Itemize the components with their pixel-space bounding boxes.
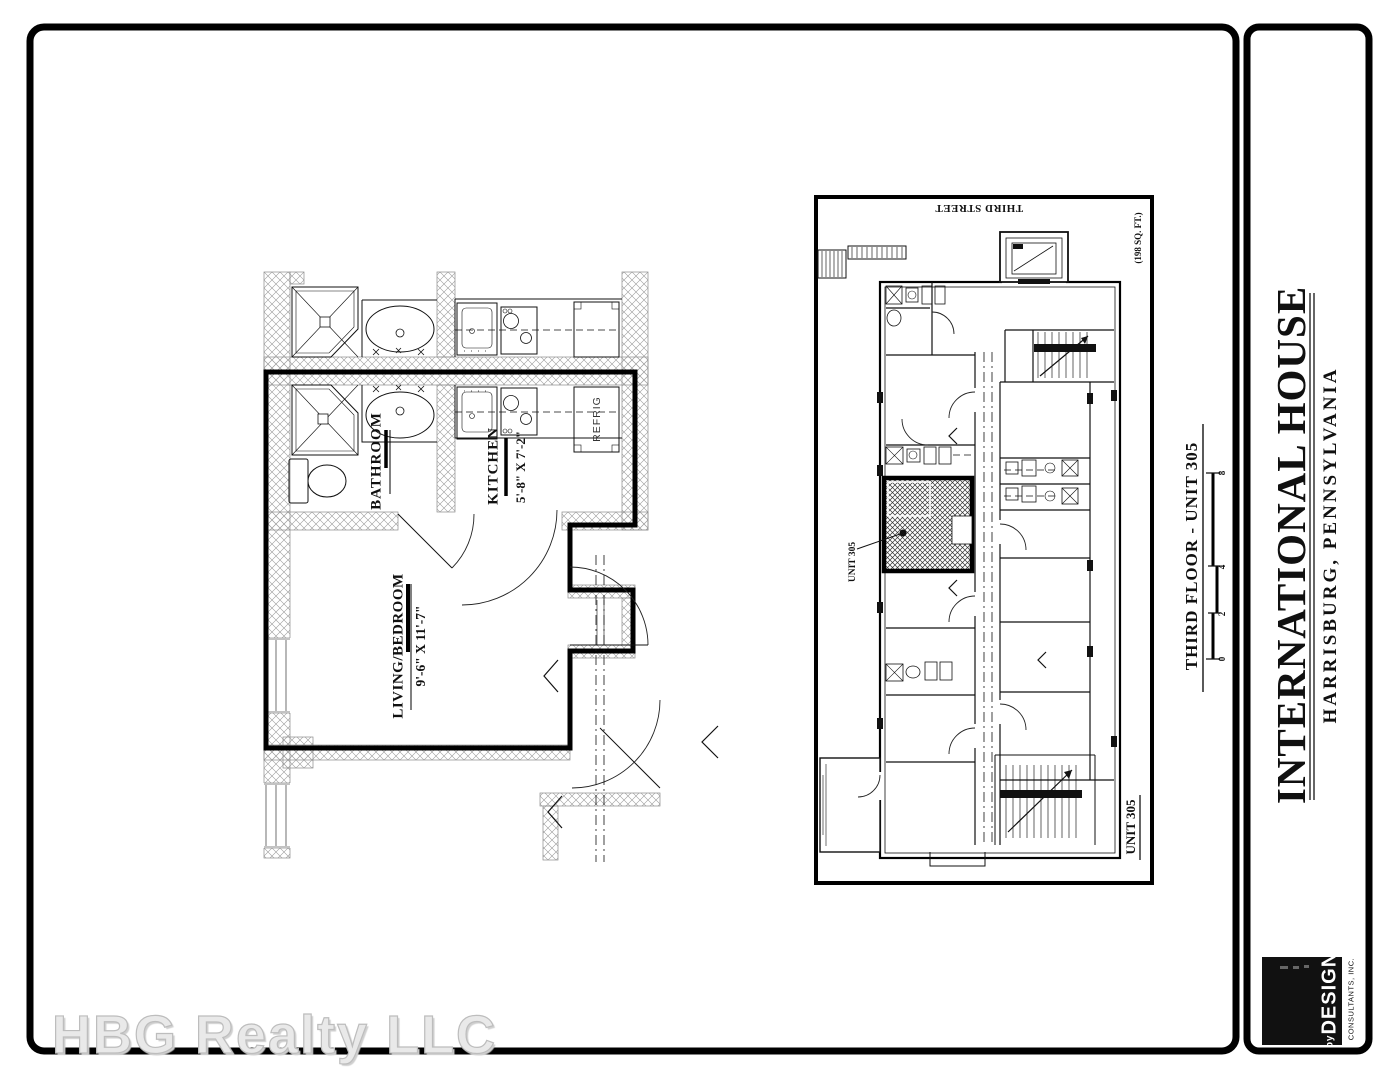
scale-tick-0: 0 (1217, 657, 1227, 662)
refrigerator-label: REFRIG (591, 396, 603, 442)
scale-tick-4: 4 (1217, 565, 1227, 570)
sheet-border (30, 27, 1369, 1051)
elevator (1000, 232, 1068, 286)
plan-title: THIRD FLOOR - UNIT 305 (1182, 442, 1202, 671)
kitchen-dimensions: 5'-8" X 7'-2" (513, 431, 529, 503)
logo-brand-name: DESIGN (1319, 952, 1341, 1035)
watermark: HBG Realty LLC (52, 1004, 497, 1066)
unit-callout: UNIT 305 (848, 542, 858, 582)
living-bedroom-dimensions: 9'-6" X 11'-7" (413, 606, 429, 687)
street-label: THIRD STREET (935, 202, 1023, 214)
project-title: INTERNATIONAL HOUSE (1267, 286, 1315, 804)
unit-corner-label: UNIT 305 (1123, 799, 1139, 854)
key-plan-linework (816, 197, 1152, 883)
area-note: (198 SQ. FT.) (1133, 212, 1143, 263)
scale-tick-2: 2 (1217, 612, 1227, 617)
logo-brand-prefix: by (1325, 1035, 1336, 1049)
living-bedroom-label: LIVING/BEDROOM (391, 573, 408, 718)
logo-brand: byDESIGN (1319, 952, 1342, 1048)
kitchen-label: KITCHEN (486, 427, 503, 505)
scale-tick-8: 8 (1217, 471, 1227, 476)
drawing-sheet: BATHROOM KITCHEN 5'-8" X 7'-2" LIVING/BE… (0, 0, 1398, 1080)
bathroom-label: BATHROOM (369, 412, 386, 510)
logo-subtext: CONSULTANTS, INC. (1347, 958, 1356, 1040)
project-location: HARRISBURG, PENNSYLVANIA (1320, 366, 1342, 723)
